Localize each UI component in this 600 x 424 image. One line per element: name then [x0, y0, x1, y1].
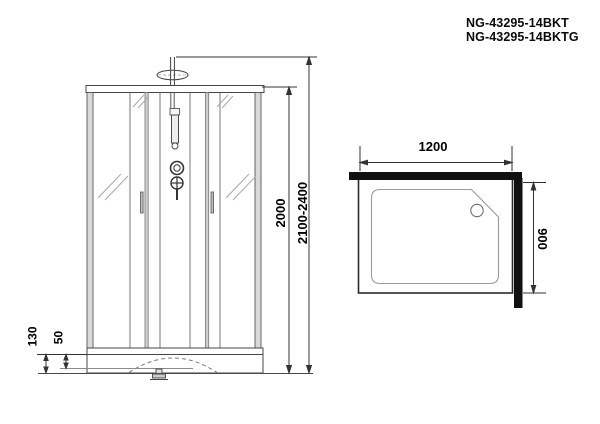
plan-view: [349, 172, 523, 308]
product-code-1: NG-43295-14BKT: [466, 17, 579, 31]
dim-label-depth-900: 900: [535, 221, 549, 257]
shower-head-icon: [157, 57, 188, 86]
right-frame-profile: [255, 93, 261, 349]
back-wall-bar: [349, 172, 522, 180]
shower-column: [170, 93, 184, 201]
left-frame-profile: [87, 93, 93, 349]
right-door-stile: [206, 93, 209, 349]
technical-drawing-canvas: NG-43295-14BKT NG-43295-14BKTG 1200 900 …: [0, 0, 600, 424]
pipe-cap: [170, 109, 180, 116]
shower-tray: [60, 348, 263, 380]
dim-label-tray-depth-50: 50: [53, 325, 66, 351]
front-elevation: [38, 57, 313, 380]
rail-holder-icon: [172, 143, 178, 149]
dim-label-cabin-height-2000: 2000: [274, 191, 288, 235]
side-wall-bar: [514, 178, 523, 308]
product-code-2: NG-43295-14BKTG: [466, 31, 579, 45]
dim-label-width-1200: 1200: [398, 140, 468, 153]
right-door-handle: [211, 192, 214, 213]
tray-inner-outline: [372, 190, 499, 284]
dim-label-overall-height-2100-2400: 2100-2400: [296, 176, 310, 250]
product-codes: NG-43295-14BKT NG-43295-14BKTG: [466, 17, 579, 44]
dim-label-tray-height-130: 130: [27, 321, 40, 353]
slide-rail: [172, 115, 179, 143]
drain-hole-icon: [471, 204, 483, 216]
left-door-stile: [145, 93, 148, 349]
roof-bar: [86, 86, 264, 93]
left-door-handle: [141, 192, 144, 213]
diverter-knob-icon: [171, 162, 184, 175]
